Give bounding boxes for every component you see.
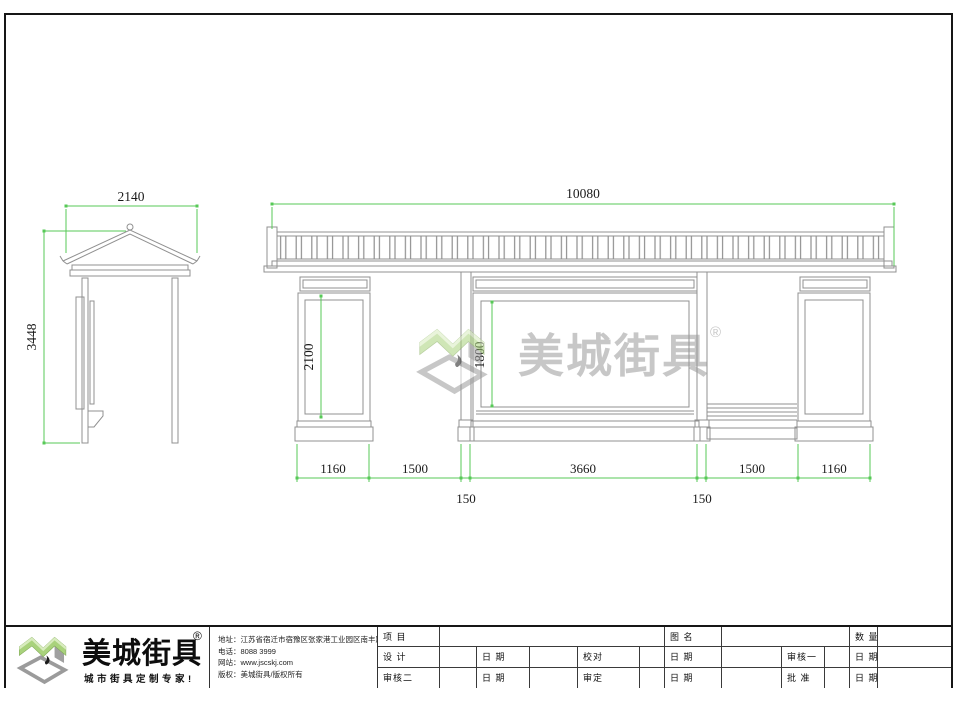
cell-design-label: 设 计	[378, 647, 440, 667]
cell-date-value	[722, 647, 782, 667]
company-logo-icon	[15, 629, 79, 687]
cell-review2-label: 审核二	[378, 668, 440, 688]
company-contact-info: 地址：江苏省宿迁市宿豫区张家港工业园区南丰路南侧1号 电话：8088 3999 …	[210, 627, 378, 688]
side-roof-finial	[127, 224, 133, 230]
dim-post-right-width: 150	[692, 491, 712, 506]
dim-center-panel-height: 1800	[472, 341, 487, 368]
side-ad-panel-edge	[76, 297, 84, 409]
contact-website: 网站：www.jscskj.com	[218, 657, 377, 669]
cell-date-value	[878, 647, 951, 667]
contact-address: 地址：江苏省宿迁市宿豫区张家港工业园区南丰路南侧1号	[218, 634, 377, 646]
cell-approve-value	[640, 668, 665, 688]
cell-drawing-name-value	[722, 627, 850, 647]
side-cornice-upper	[72, 265, 188, 270]
cell-review1-label: 审核一	[782, 647, 825, 667]
side-post-left	[82, 278, 88, 443]
pillar-right	[795, 277, 873, 441]
dim-side-width: 2140	[118, 189, 145, 204]
cell-drawing-name-label: 图 名	[665, 627, 722, 647]
company-name: 美城街具	[82, 630, 202, 672]
cell-quantity-label: 数 量	[850, 627, 878, 647]
cell-ratify-label: 批 准	[782, 668, 825, 688]
cell-date-label: 日 期	[665, 668, 722, 688]
side-roof-inner	[67, 234, 193, 264]
technical-drawing: 2140 3448	[0, 0, 960, 704]
roof-fascia	[272, 261, 892, 266]
cell-date-label: 日 期	[850, 668, 878, 688]
dim-pillar-left-width: 1160	[320, 461, 346, 476]
cell-date-value	[530, 647, 578, 667]
company-slogan: 城市街具定制专家!	[84, 671, 195, 685]
cell-ratify-value	[825, 668, 850, 688]
cell-date-label: 日 期	[477, 668, 530, 688]
side-post-right	[172, 278, 178, 443]
cell-review1-value	[825, 647, 850, 667]
cell-check-label: 校对	[578, 647, 640, 667]
contact-copyright: 版权：美城街具/版权所有	[218, 669, 377, 681]
side-view	[60, 224, 200, 443]
front-view	[264, 227, 896, 441]
dim-post-left-width: 150	[456, 491, 476, 506]
cell-project-value	[440, 627, 665, 647]
dim-center-panel-width: 3660	[570, 461, 596, 476]
cell-quantity-value	[878, 627, 951, 647]
dim-pillar-right-width: 1160	[821, 461, 847, 476]
cell-date-label: 日 期	[665, 647, 722, 667]
cell-check-value	[640, 647, 665, 667]
dim-right-bay-width: 1500	[739, 461, 765, 476]
title-table: 项 目 图 名 数 量 设 计 日 期 校对 日 期 审核一 日 期 审核二 日…	[378, 627, 951, 688]
cell-date-value	[878, 668, 951, 688]
cell-approve-label: 审定	[578, 668, 640, 688]
roof-cornice	[264, 266, 896, 272]
roof-slat-band	[277, 236, 884, 259]
cell-date-label: 日 期	[477, 647, 530, 667]
cell-date-label: 日 期	[850, 647, 878, 667]
cell-date-value	[722, 668, 782, 688]
cell-review2-value	[440, 668, 477, 688]
registered-trademark-icon: ®	[193, 629, 202, 643]
company-logo-area: 美城街具 ® 城市街具定制专家!	[6, 627, 210, 688]
title-block: 美城街具 ® 城市街具定制专家! 地址：江苏省宿迁市宿豫区张家港工业园区南丰路南…	[6, 625, 951, 688]
contact-phone: 电话：8088 3999	[218, 646, 377, 658]
side-seat-bracket	[88, 411, 103, 427]
cell-date-value	[530, 668, 578, 688]
cell-project-label: 项 目	[378, 627, 440, 647]
bench	[707, 404, 797, 439]
drawing-sheet: { "watermark": { "brand": "美城街具", "reg":…	[0, 0, 960, 704]
dim-front-total-width: 10080	[566, 186, 600, 201]
dim-left-panel-height: 2100	[301, 343, 316, 370]
side-view-dimension-lines	[44, 206, 197, 443]
dim-left-bay-width: 1500	[402, 461, 428, 476]
dim-side-height: 3448	[24, 323, 39, 350]
side-cornice-lower	[70, 270, 190, 276]
cell-design-value	[440, 647, 477, 667]
center-panel	[470, 277, 700, 441]
side-ad-panel-inner-edge	[90, 301, 94, 404]
